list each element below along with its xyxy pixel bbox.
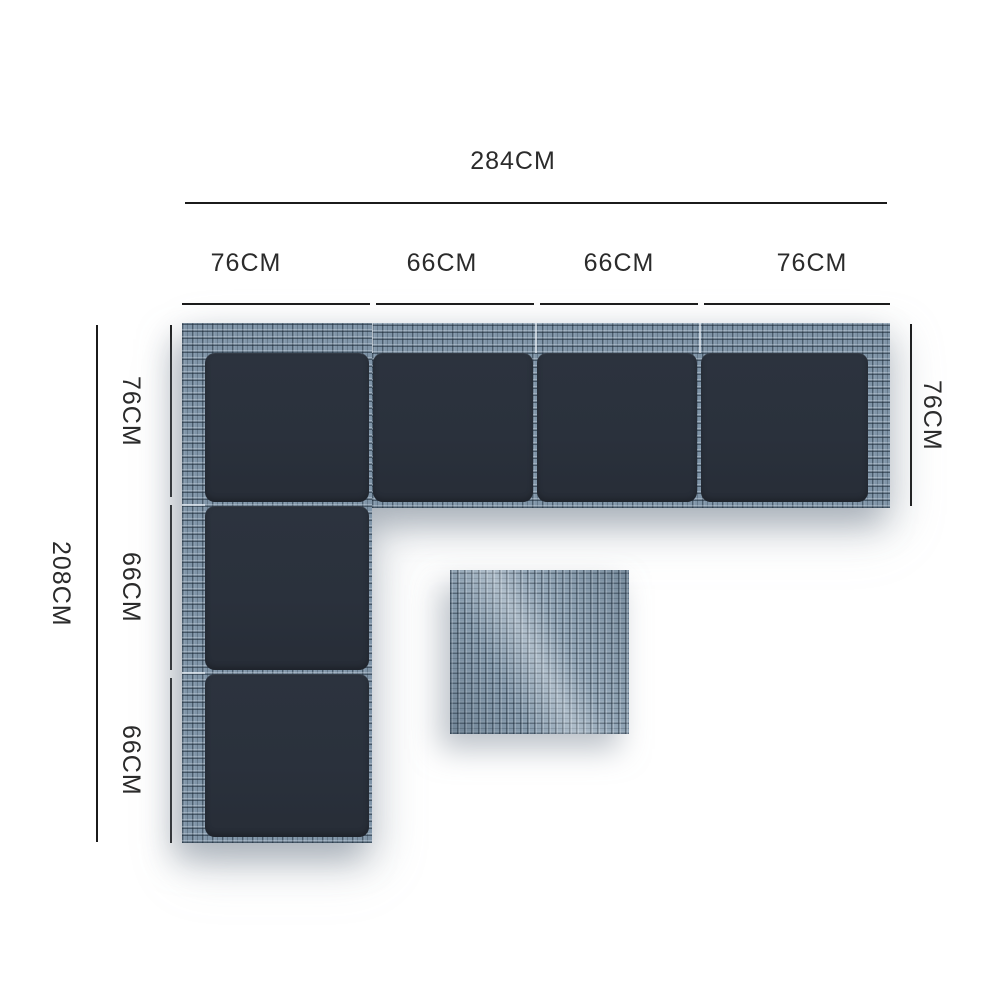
sofa-dimension-diagram: 284CM 76CM 66CM 66CM 76CM 208CM 76CM 66C… — [0, 0, 1000, 1000]
side-table-wrap — [0, 0, 1000, 1000]
side-table — [450, 570, 629, 734]
